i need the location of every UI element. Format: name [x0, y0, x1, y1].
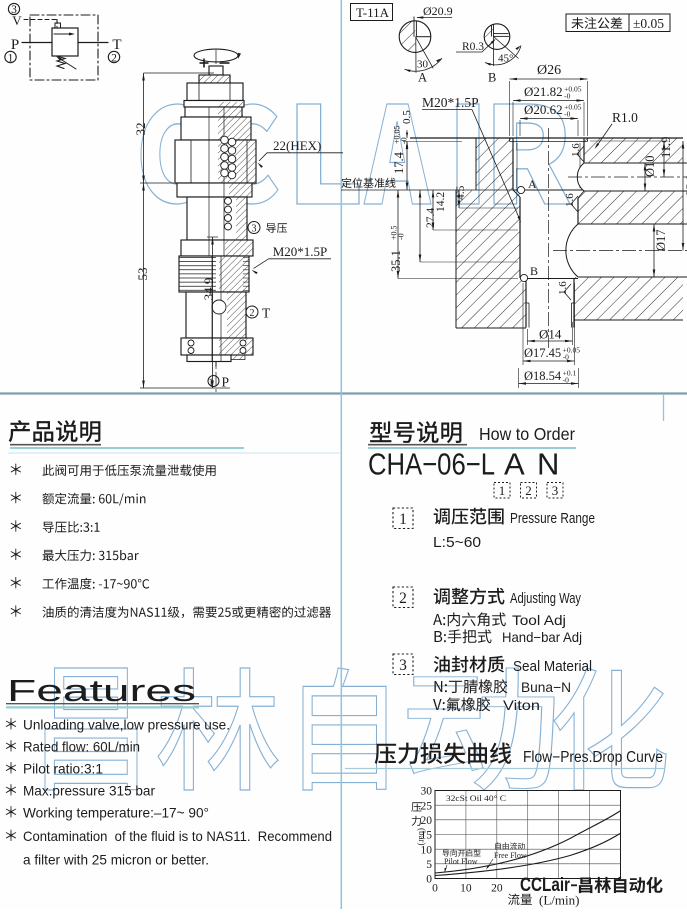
svg-text:32: 32	[133, 123, 148, 136]
svg-text:Ø20.9: Ø20.9	[423, 4, 453, 18]
svg-text:10: 10	[460, 883, 472, 895]
svg-text:Ø20.62: Ø20.62	[524, 102, 563, 117]
svg-text:2: 2	[525, 483, 532, 498]
svg-text:2: 2	[250, 308, 255, 319]
svg-text:R1.0: R1.0	[612, 110, 638, 125]
svg-text:T-11A: T-11A	[356, 5, 390, 20]
svg-text:4.5: 4.5	[455, 185, 467, 200]
svg-text:T: T	[262, 306, 271, 321]
svg-text:53: 53	[135, 268, 150, 281]
svg-text:T: T	[112, 37, 121, 53]
svg-text:Ø18.54: Ø18.54	[524, 369, 562, 383]
svg-text:20: 20	[491, 883, 503, 895]
svg-text:1: 1	[499, 483, 506, 498]
svg-text:V: V	[12, 13, 22, 28]
svg-text:20: 20	[421, 815, 433, 827]
svg-text:1: 1	[208, 378, 213, 389]
svg-text:Flow−Pres.Drop Curve: Flow−Pres.Drop Curve	[523, 749, 663, 766]
svg-text:-0: -0	[564, 110, 570, 119]
svg-text:2: 2	[111, 52, 117, 64]
svg-text:17.4: 17.4	[392, 151, 406, 174]
svg-text:25: 25	[421, 800, 433, 812]
svg-text:2: 2	[399, 590, 407, 607]
svg-text:27.4: 27.4	[425, 208, 437, 228]
svg-text:Pilot Flow: Pilot Flow	[444, 857, 478, 866]
svg-text:a filter with 25 micron or bet: a filter with 25 micron or better.	[23, 852, 209, 868]
svg-text:Adjusting Way: Adjusting Way	[510, 591, 582, 607]
svg-text:CHA−06−L: CHA−06−L	[368, 447, 495, 482]
svg-text:(bar): (bar)	[417, 828, 427, 846]
svg-text:Rated flow: 60L/min: Rated flow: 60L/min	[23, 739, 140, 755]
svg-text:3: 3	[399, 657, 407, 674]
svg-text:-0: -0	[564, 92, 570, 101]
svg-text:Buna−N: Buna−N	[521, 679, 571, 695]
svg-text:1.6: 1.6	[564, 193, 576, 207]
svg-text:How to Order: How to Order	[479, 424, 575, 444]
svg-text:Hand−bar Adj: Hand−bar Adj	[502, 629, 582, 645]
svg-text:Features: Features	[7, 673, 196, 708]
svg-text:R0.3: R0.3	[462, 41, 484, 53]
svg-text:30: 30	[421, 786, 433, 798]
svg-text:M20*1.5P: M20*1.5P	[273, 244, 328, 259]
svg-text:Pilot ratio:3:1: Pilot ratio:3:1	[23, 761, 103, 777]
svg-text:3: 3	[552, 483, 559, 498]
svg-text:1.6: 1.6	[570, 143, 582, 157]
svg-text:35.1: 35.1	[389, 250, 403, 272]
svg-text:11.9: 11.9	[659, 137, 673, 158]
svg-text:L:5~60: L:5~60	[433, 534, 481, 551]
svg-text:3: 3	[252, 224, 257, 235]
svg-text:Unloading valve,low pressure u: Unloading valve,low pressure use.	[23, 717, 230, 733]
svg-text:Ø17.45: Ø17.45	[524, 346, 561, 360]
svg-text:1: 1	[399, 511, 407, 528]
svg-text:Pressure Range: Pressure Range	[510, 511, 595, 527]
svg-text:34.9: 34.9	[201, 278, 216, 301]
svg-text:A: A	[504, 447, 525, 482]
svg-text:1: 1	[8, 52, 14, 64]
svg-text:32cSt Oil 40° C: 32cSt Oil 40° C	[446, 793, 506, 803]
svg-text:Tool Adj: Tool Adj	[512, 612, 566, 628]
svg-text:P: P	[11, 37, 19, 53]
svg-text:Ø26: Ø26	[537, 63, 561, 78]
svg-text:Seal Material: Seal Material	[513, 659, 592, 675]
svg-text:Max.pressure 315 bar: Max.pressure 315 bar	[23, 783, 155, 799]
svg-text:0.5: 0.5	[401, 110, 413, 124]
svg-text:Contamination of the fluid is: Contamination of the fluid is to NAS11. …	[23, 828, 332, 844]
svg-text:22(HEX): 22(HEX)	[273, 138, 321, 153]
svg-text:Viton: Viton	[503, 697, 540, 713]
svg-text:Ø21.82: Ø21.82	[524, 84, 563, 99]
svg-text:A: A	[528, 177, 537, 191]
svg-text:P: P	[222, 375, 230, 390]
svg-text:45°: 45°	[498, 53, 513, 65]
svg-text:Working temperature:–17~ 90°: Working temperature:–17~ 90°	[23, 805, 209, 821]
svg-text:B: B	[530, 264, 538, 278]
svg-text:CCLair: CCLair	[520, 874, 570, 896]
svg-text:1.6: 1.6	[557, 281, 569, 295]
svg-text:Ø14: Ø14	[539, 327, 562, 342]
svg-text:Free Flow: Free Flow	[494, 851, 527, 860]
svg-text:5: 5	[426, 859, 432, 871]
svg-text:30: 30	[417, 59, 429, 71]
svg-text:0: 0	[432, 883, 438, 895]
svg-text:B: B	[488, 71, 496, 85]
svg-text:N: N	[537, 447, 559, 482]
svg-text:A: A	[418, 71, 427, 85]
svg-text:Ø17: Ø17	[654, 229, 668, 251]
svg-text:±0.05: ±0.05	[633, 16, 664, 31]
svg-text:M20*1.5P: M20*1.5P	[422, 95, 479, 110]
svg-text:10: 10	[421, 844, 433, 856]
